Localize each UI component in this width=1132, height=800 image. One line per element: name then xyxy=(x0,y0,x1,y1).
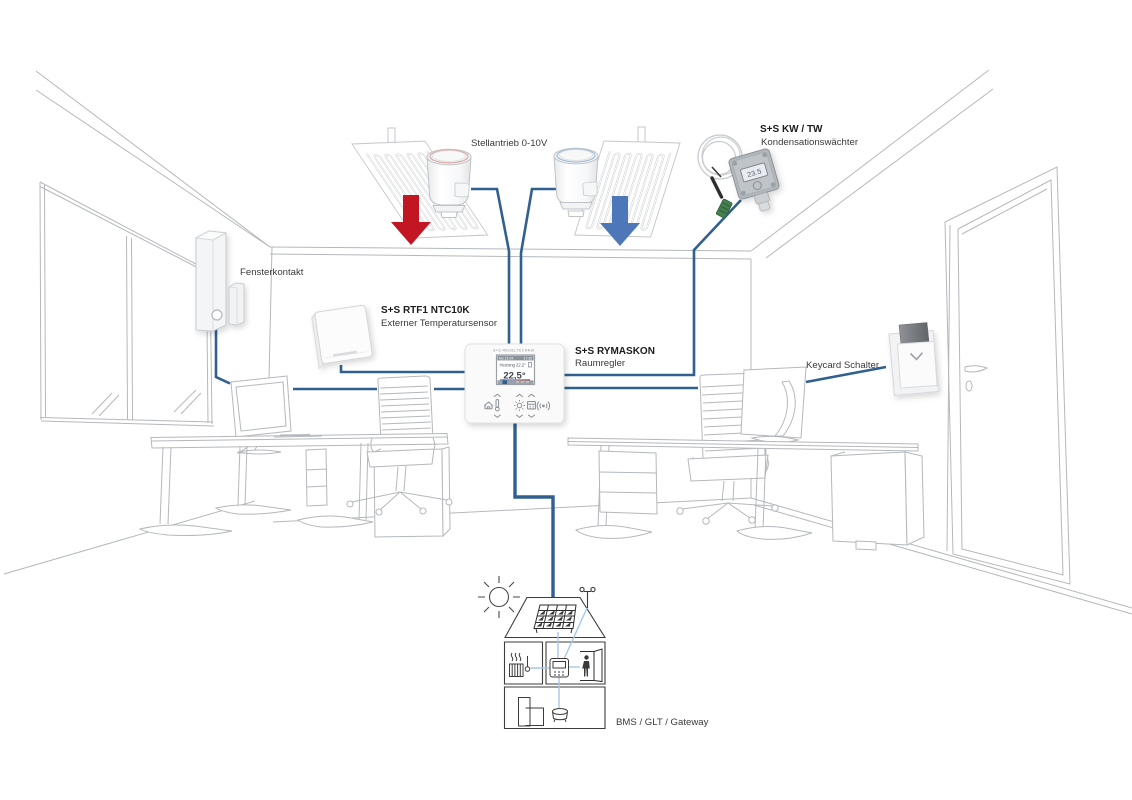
svg-text:BMS / GLT / Gateway: BMS / GLT / Gateway xyxy=(616,717,709,728)
svg-text:S+S RTF1 NTC10K: S+S RTF1 NTC10K xyxy=(381,305,470,316)
svg-text:Raumregler: Raumregler xyxy=(575,358,626,369)
svg-text:17:35: 17:35 xyxy=(524,357,533,361)
svg-text:Heizung: Heizung xyxy=(500,363,516,368)
svg-text:Fensterkontakt: Fensterkontakt xyxy=(240,267,304,278)
svg-text:S+S KW / TW: S+S KW / TW xyxy=(760,124,823,135)
svg-text:Mo 21.04.: Mo 21.04. xyxy=(499,357,514,361)
svg-text:S+S RYMASKON: S+S RYMASKON xyxy=(575,346,655,357)
svg-text:Kondensationswächter: Kondensationswächter xyxy=(761,137,859,148)
svg-text:Keycard Schalter: Keycard Schalter xyxy=(806,360,880,371)
svg-text:Externer Temperatursensor: Externer Temperatursensor xyxy=(381,318,498,329)
svg-text:S+S REGELTECHNIK: S+S REGELTECHNIK xyxy=(493,349,535,353)
svg-text:22.2°: 22.2° xyxy=(516,363,526,368)
svg-text:Stellantrieb 0-10V: Stellantrieb 0-10V xyxy=(471,138,548,149)
